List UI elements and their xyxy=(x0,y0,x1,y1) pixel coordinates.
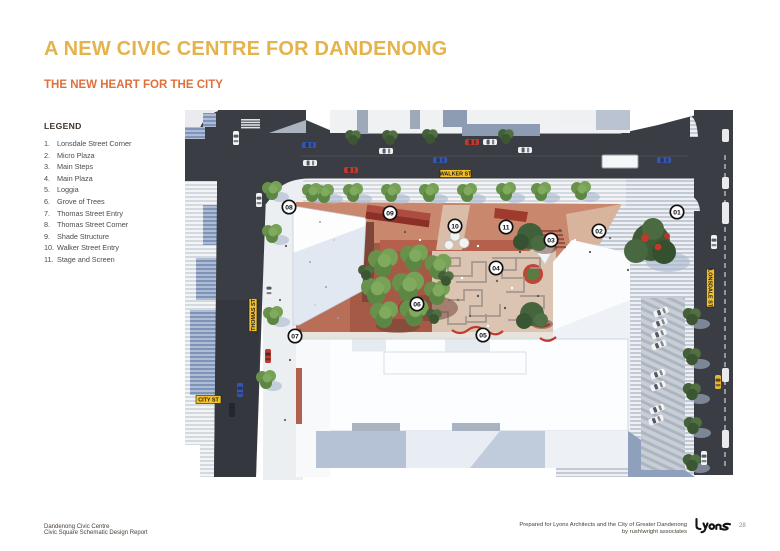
svg-text:CITY ST: CITY ST xyxy=(198,398,219,404)
svg-text:05: 05 xyxy=(479,332,487,339)
svg-text:06: 06 xyxy=(413,301,421,308)
svg-text:04: 04 xyxy=(492,265,500,272)
svg-text:07: 07 xyxy=(291,333,299,340)
svg-text:08: 08 xyxy=(285,204,293,211)
svg-text:10: 10 xyxy=(451,223,459,230)
svg-text:09: 09 xyxy=(386,210,394,217)
svg-text:THOMAS ST: THOMAS ST xyxy=(251,298,257,330)
svg-text:02: 02 xyxy=(595,228,603,235)
svg-text:03: 03 xyxy=(547,237,555,244)
svg-text:LONSDALE ST: LONSDALE ST xyxy=(706,269,712,308)
svg-text:WALKER ST: WALKER ST xyxy=(440,172,472,178)
svg-text:11: 11 xyxy=(502,224,509,231)
svg-text:01: 01 xyxy=(673,209,681,216)
